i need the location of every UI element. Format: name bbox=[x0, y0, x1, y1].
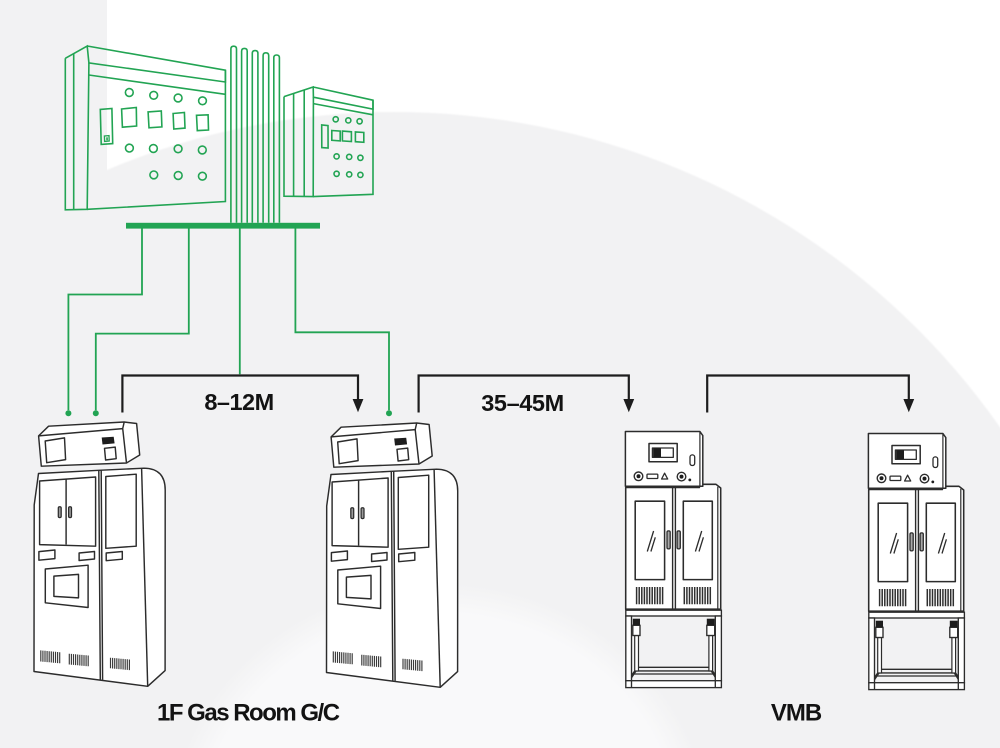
svg-text:8–12M: 8–12M bbox=[204, 389, 273, 415]
svg-text:VMB: VMB bbox=[771, 700, 822, 727]
svg-text:1F Gas Room G/C: 1F Gas Room G/C bbox=[157, 700, 340, 727]
svg-text:35–45M: 35–45M bbox=[481, 390, 564, 416]
